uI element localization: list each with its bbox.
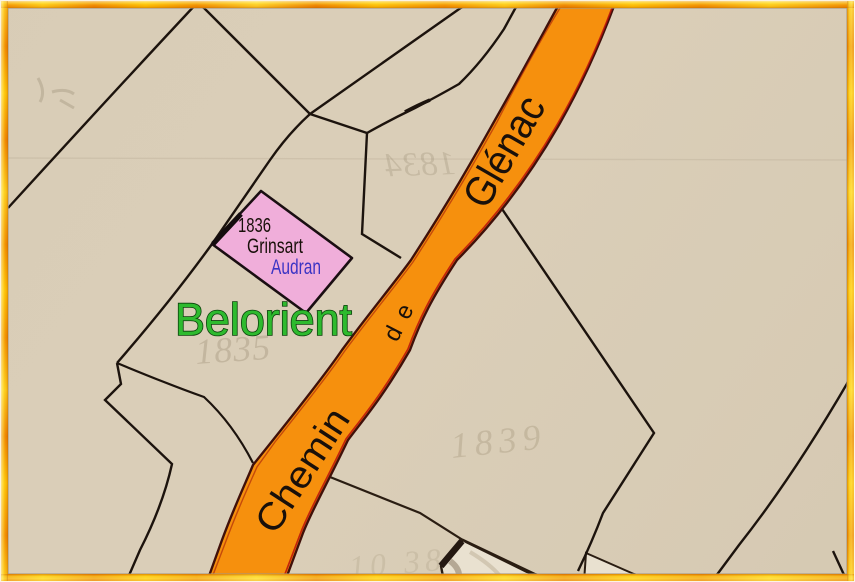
svg-text:1836: 1836 [238,215,271,237]
svg-text:Belorient: Belorient [175,294,352,345]
svg-text:Audran: Audran [271,256,321,279]
svg-text:1834: 1834 [383,145,456,184]
svg-text:Grinsart: Grinsart [247,235,303,258]
